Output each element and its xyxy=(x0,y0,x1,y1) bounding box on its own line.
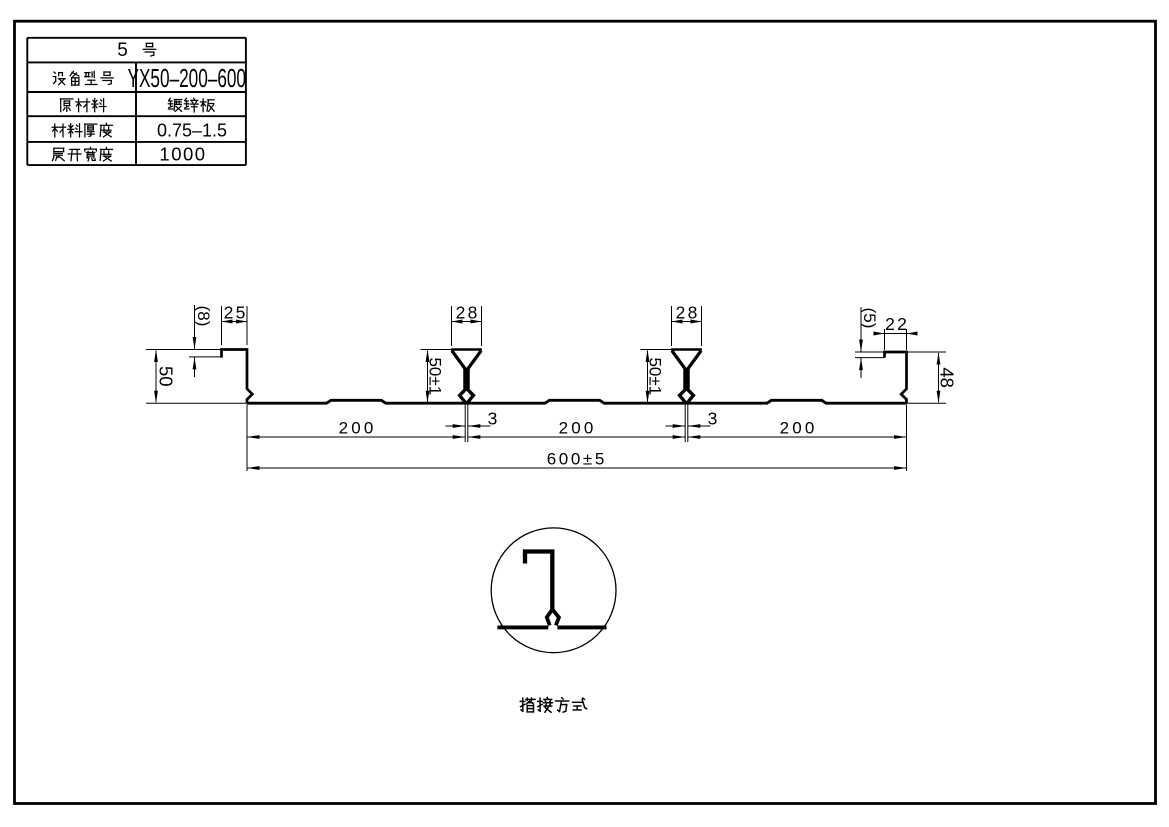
svg-text:50: 50 xyxy=(156,366,177,387)
svg-text:28: 28 xyxy=(456,303,480,323)
svg-text:3: 3 xyxy=(488,409,498,429)
svg-text:200: 200 xyxy=(339,419,377,438)
svg-text:1000: 1000 xyxy=(159,144,206,165)
svg-text:200: 200 xyxy=(559,419,597,438)
svg-text:22: 22 xyxy=(885,314,909,334)
svg-text:600±5: 600±5 xyxy=(547,450,607,469)
svg-text:(8): (8) xyxy=(194,306,213,327)
svg-text:3: 3 xyxy=(708,409,718,429)
svg-text:0.75–1.5: 0.75–1.5 xyxy=(157,121,227,141)
svg-text:48: 48 xyxy=(937,367,958,388)
svg-text:(5): (5) xyxy=(860,308,879,329)
svg-text:25: 25 xyxy=(224,303,248,323)
svg-text:YX50–200–600: YX50–200–600 xyxy=(128,63,247,93)
svg-text:28: 28 xyxy=(676,303,700,323)
svg-text:200: 200 xyxy=(780,419,818,438)
svg-text:50±1: 50±1 xyxy=(426,357,445,395)
svg-text:5: 5 xyxy=(117,40,128,61)
svg-text:50±1: 50±1 xyxy=(646,357,665,395)
